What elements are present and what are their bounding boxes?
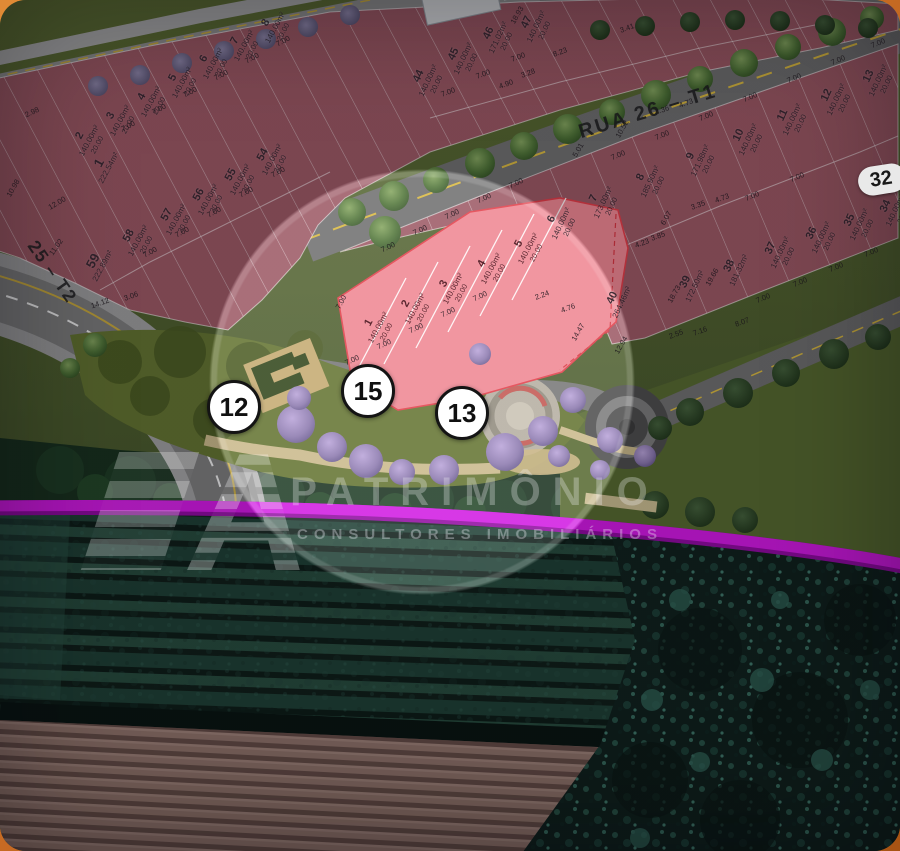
- numbered-map-marker[interactable]: 13: [435, 386, 489, 440]
- numbered-map-marker[interactable]: 12: [207, 380, 261, 434]
- marker-number: 12: [220, 392, 249, 423]
- numbered-map-marker[interactable]: 15: [341, 364, 395, 418]
- marker-number: 15: [354, 376, 383, 407]
- marker-number: 13: [448, 398, 477, 429]
- markers-layer: 12 15 13: [0, 0, 900, 851]
- masterplan-screenshot: 1 222.54m² 2 140.00m² 20.00 3 140.00m² 2…: [0, 0, 900, 851]
